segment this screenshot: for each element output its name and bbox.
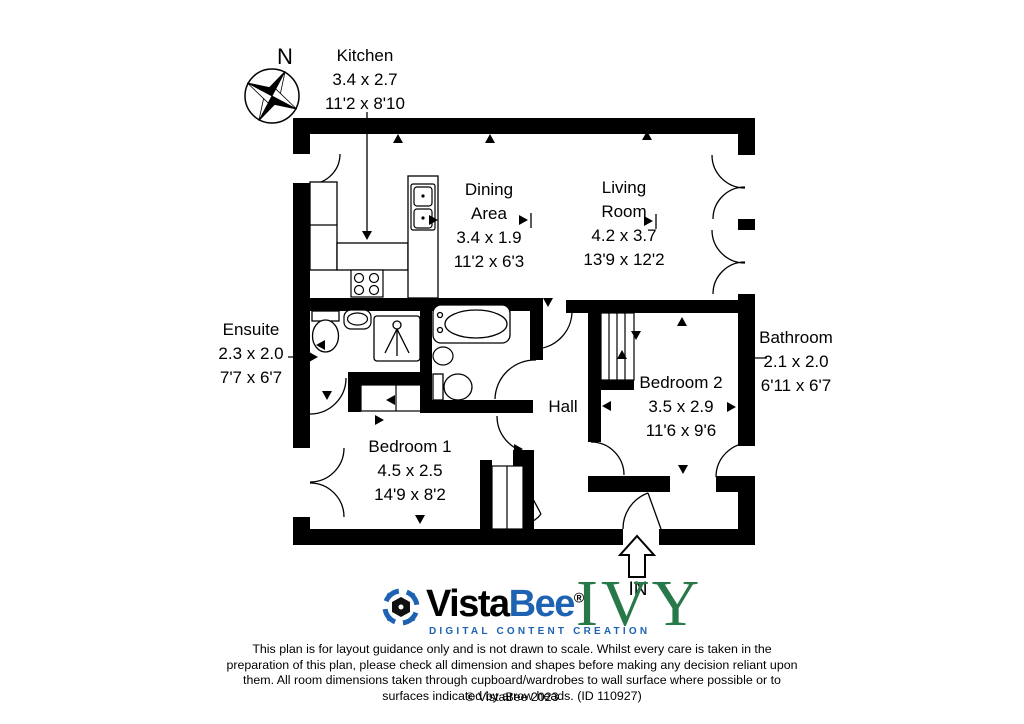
vistabee-wordmark-bee: Bee (509, 583, 574, 625)
room-dim-imperial: 11'2 x 8'10 (290, 92, 440, 116)
living-french-door-arc (713, 187, 745, 219)
room-dim-metric: 4.5 x 2.5 (340, 459, 480, 483)
living-french-door-arc (712, 155, 745, 188)
entry-door-arc (623, 493, 648, 529)
bedroom1-french-door-arc (310, 483, 344, 517)
ensuite-toilet-icon (312, 311, 339, 352)
ensuite-sink-icon (344, 310, 371, 329)
room-dim-imperial: 11'2 x 6'3 (429, 250, 549, 274)
room-dim-imperial: 13'9 x 12'2 (564, 248, 684, 272)
room-name: Bedroom 1 (340, 435, 480, 459)
bathroom-toilet-icon (433, 374, 472, 400)
living-french-door-arc (712, 230, 745, 263)
floorplan-page: Kitchen 3.4 x 2.7 11'2 x 8'10 Dining Are… (0, 0, 1024, 724)
room-dim-metric: 4.2 x 3.7 (564, 224, 684, 248)
hall-closet-icon (492, 466, 523, 529)
bathroom-label: Bathroom 2.1 x 2.0 6'11 x 6'7 (742, 326, 850, 398)
bedroom1-label: Bedroom 1 4.5 x 2.5 14'9 x 8'2 (340, 435, 480, 507)
bathroom-door-arc (495, 360, 536, 399)
dining-area-label: Dining Area 3.4 x 1.9 11'2 x 6'3 (429, 178, 549, 274)
ensuite-label: Ensuite 2.3 x 2.0 7'7 x 6'7 (196, 318, 306, 390)
room-name: Area (429, 202, 549, 226)
ivy-logo: IVY (576, 571, 702, 637)
bedroom2-label: Bedroom 2 3.5 x 2.9 11'6 x 9'6 (611, 371, 751, 443)
bathroom-sink-icon (433, 347, 453, 365)
bath-icon (433, 305, 510, 343)
room-dim-metric: 2.3 x 2.0 (196, 342, 306, 366)
vistabee-wordmark-vista: Vista (426, 583, 509, 625)
kitchen-door-arc (310, 154, 340, 184)
living-french-door-arc (713, 262, 745, 294)
room-dim-metric: 3.5 x 2.9 (611, 395, 751, 419)
room-dim-metric: 3.4 x 2.7 (290, 68, 440, 92)
room-name: Room (564, 200, 684, 224)
room-name: Hall (533, 395, 593, 419)
bedroom2-wardrobe-icon (601, 313, 634, 380)
room-dim-metric: 3.4 x 1.9 (429, 226, 549, 250)
bedroom2-door-arc (716, 443, 750, 477)
room-name: Bedroom 2 (611, 371, 751, 395)
room-dim-imperial: 7'7 x 6'7 (196, 366, 306, 390)
kitchen-label: Kitchen 3.4 x 2.7 11'2 x 8'10 (290, 44, 440, 116)
room-name: Kitchen (290, 44, 440, 68)
room-name: Dining (429, 178, 549, 202)
vistabee-logo-icon (380, 586, 422, 628)
hall-label: Hall (533, 395, 593, 419)
compass-north-label: N (277, 44, 293, 70)
bedroom1-french-door-arc (310, 448, 344, 482)
copyright-text: © VistaBee 2023 (222, 690, 802, 704)
hall-vestibule-door-arc (591, 442, 624, 475)
shower-icon (374, 316, 420, 361)
room-dim-imperial: 14'9 x 8'2 (340, 483, 480, 507)
room-name: Bathroom (742, 326, 850, 350)
hob-icon (351, 270, 383, 297)
room-dim-imperial: 11'6 x 9'6 (611, 419, 751, 443)
living-room-label: Living Room 4.2 x 3.7 13'9 x 12'2 (564, 176, 684, 272)
room-dim-imperial: 6'11 x 6'7 (742, 374, 850, 398)
room-name: Ensuite (196, 318, 306, 342)
entry-door-leaf (648, 493, 661, 529)
vistabee-wordmark: VistaBee® (426, 583, 584, 626)
room-name: Living (564, 176, 684, 200)
room-dim-metric: 2.1 x 2.0 (742, 350, 850, 374)
